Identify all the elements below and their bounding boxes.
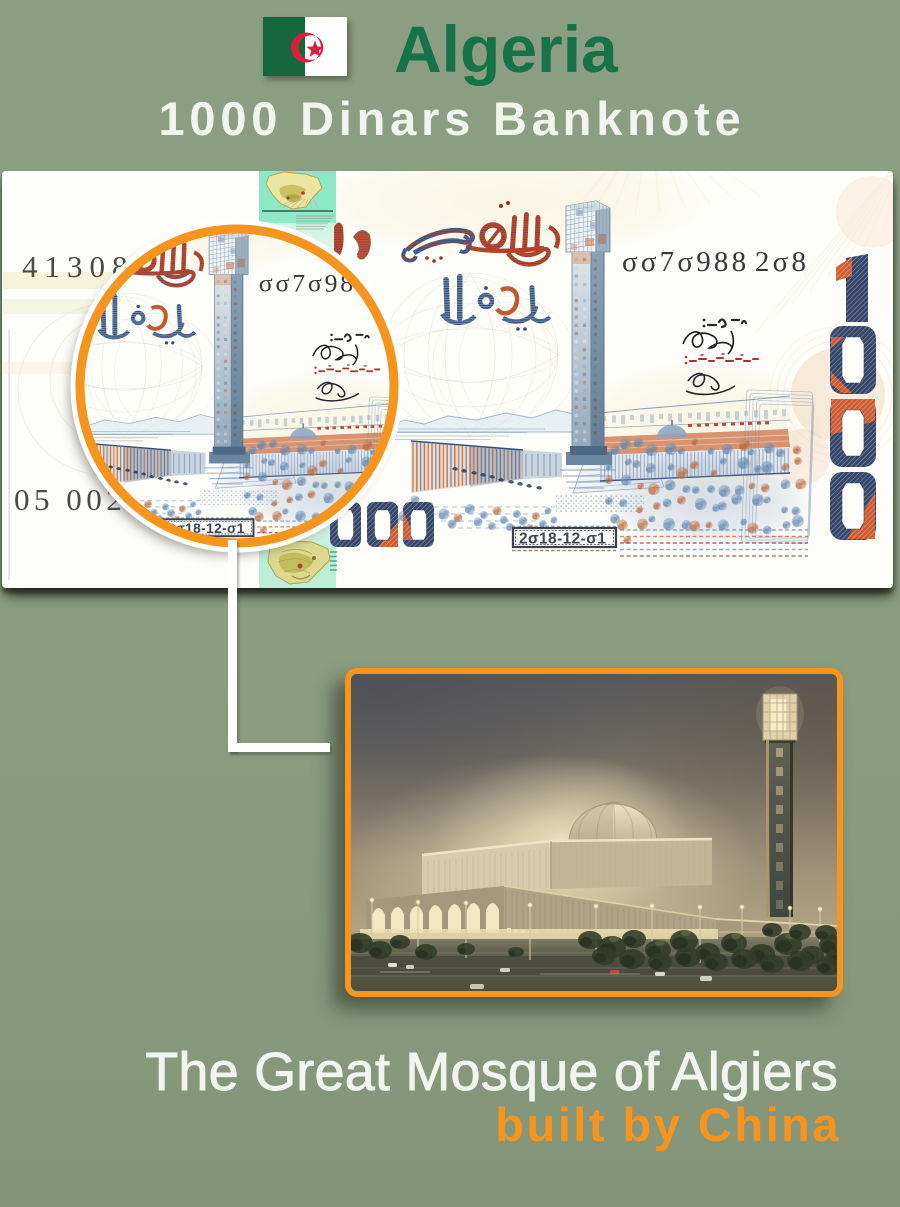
svg-text:2σ18-12-σ1: 2σ18-12-σ1: [519, 531, 606, 548]
svg-text:σσ7σ988 2σ8: σσ7σ988 2σ8: [622, 246, 809, 278]
